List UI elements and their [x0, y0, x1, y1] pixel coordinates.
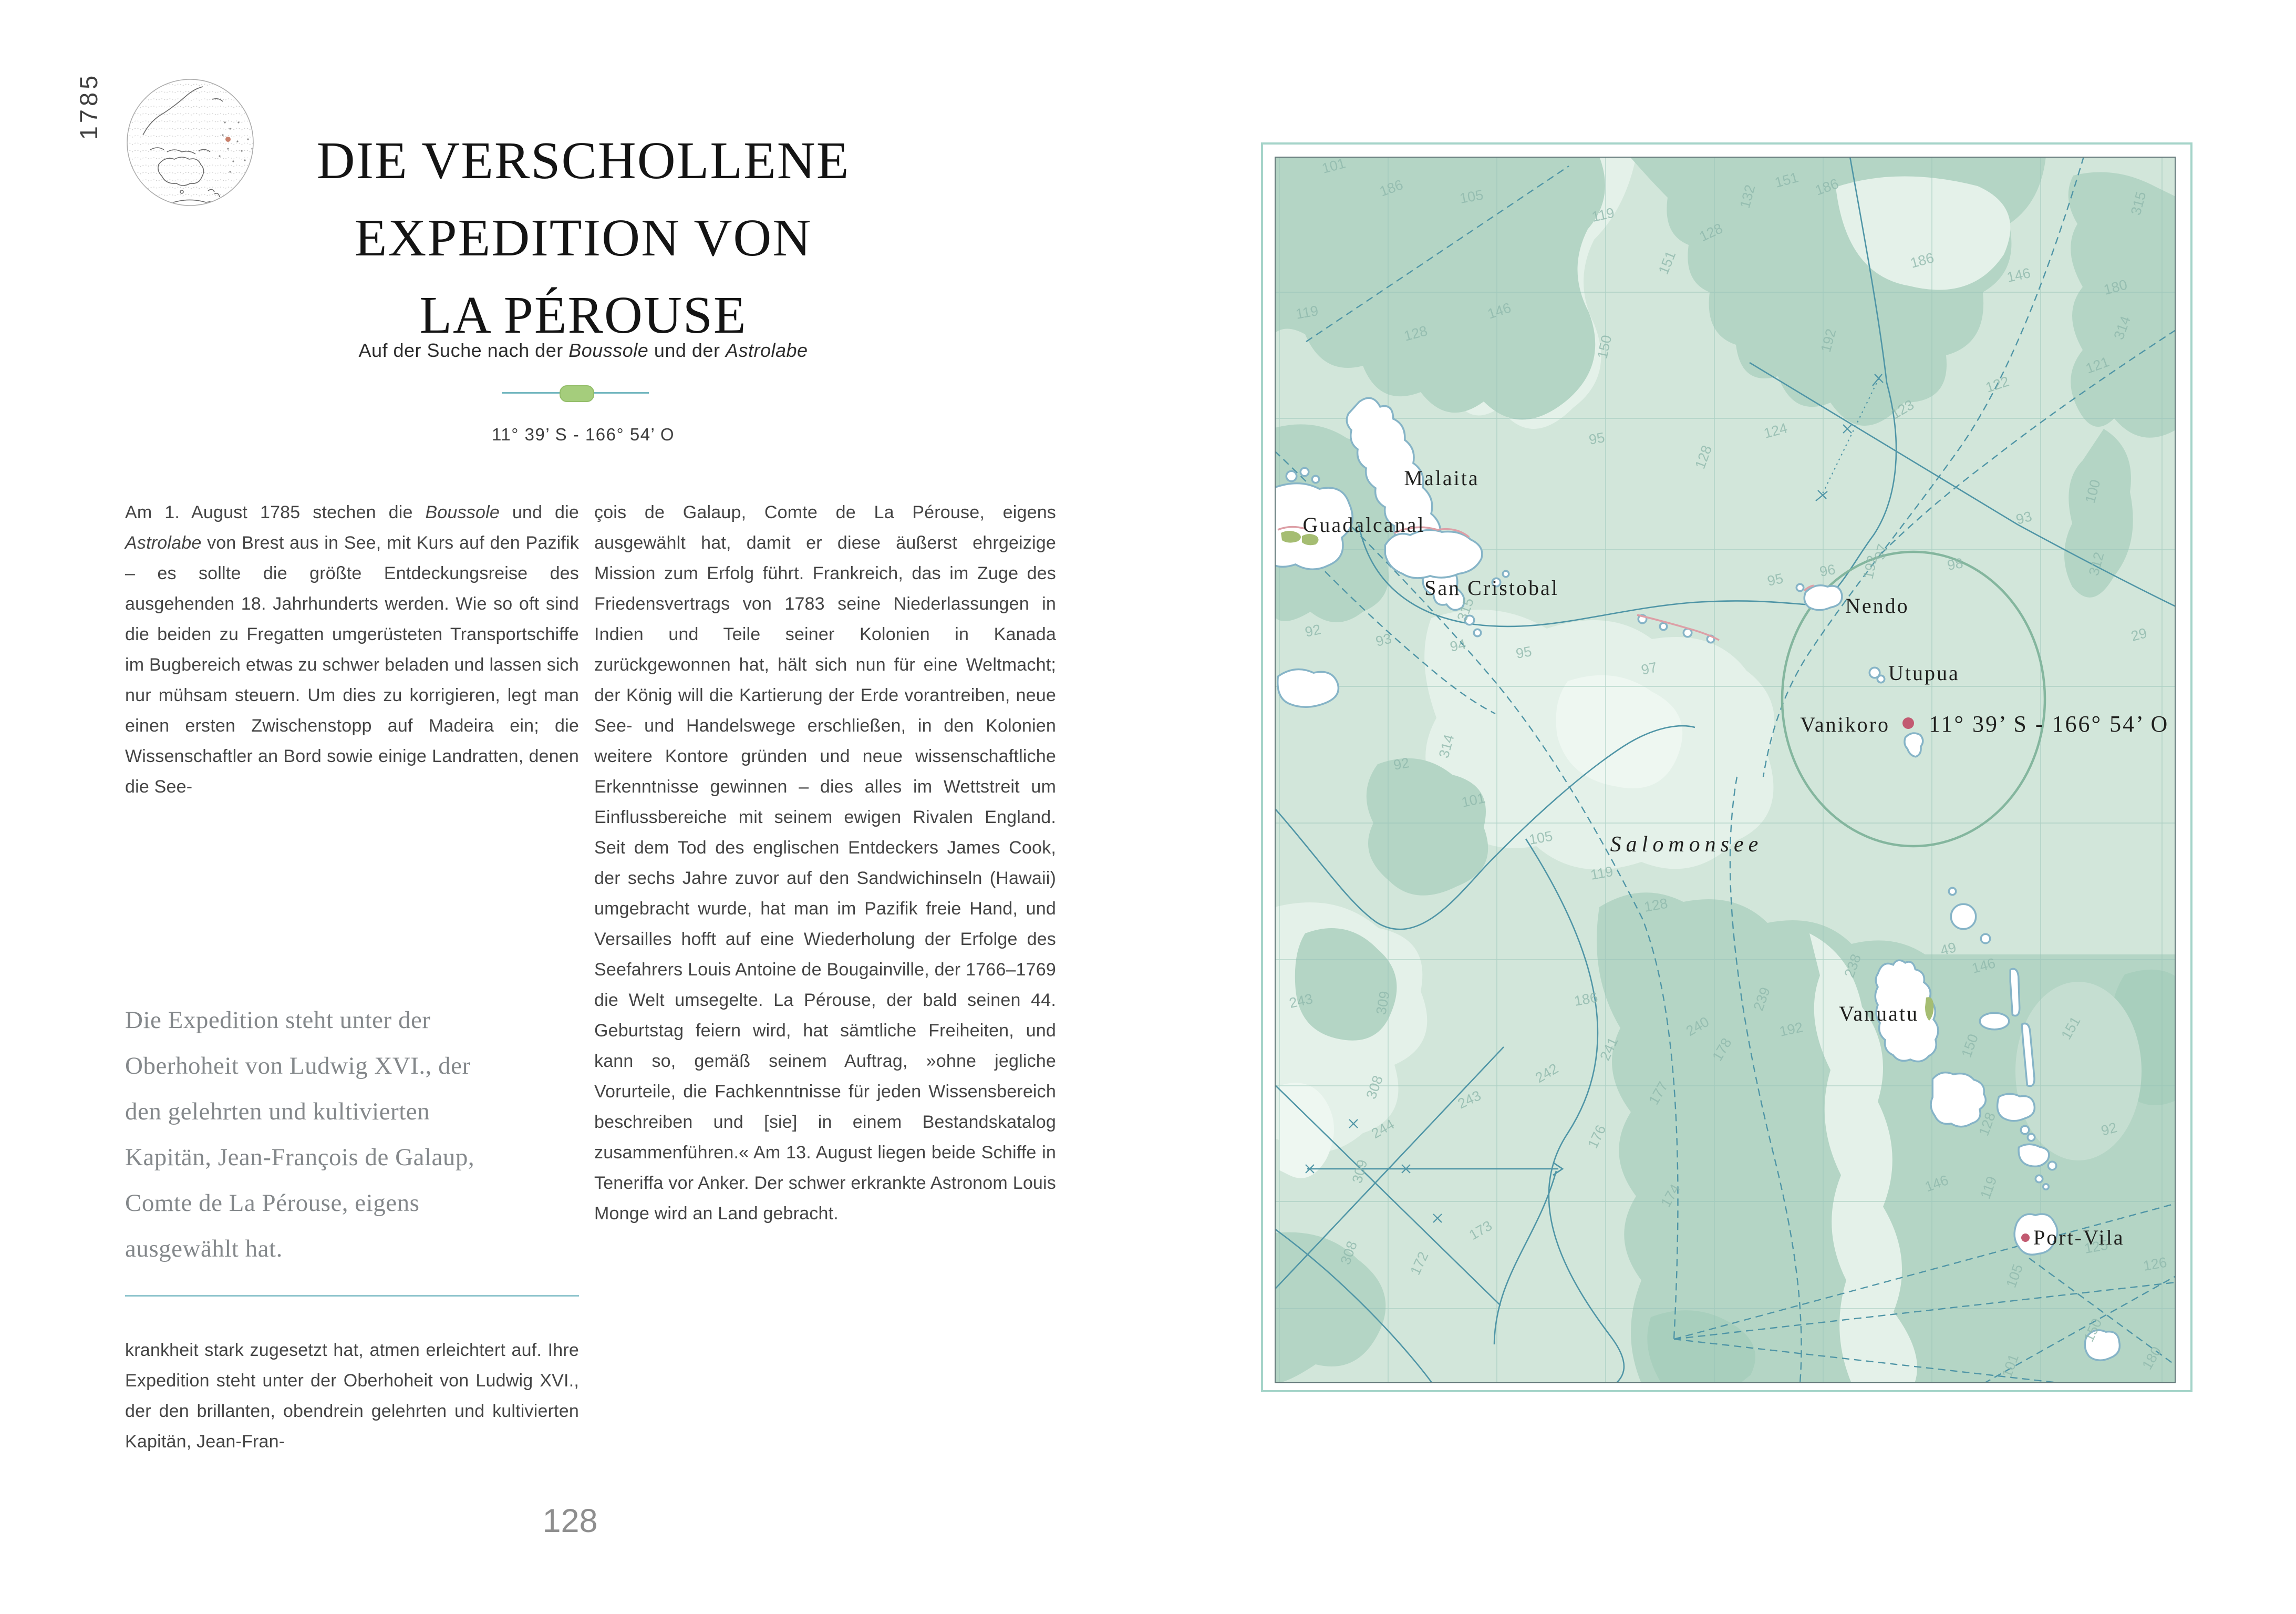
subtitle: Auf der Suche nach der Boussole und der … [200, 340, 967, 362]
map-label: Malaita [1404, 466, 1479, 490]
coordinates-heading: 11° 39’ S - 166° 54’ O [200, 425, 967, 445]
island-maewo [2011, 970, 2019, 1015]
year-label: 1785 [57, 64, 120, 148]
book-page: { "page": { "year_label": "1785", "page_… [0, 0, 2296, 1614]
island-nendo [1805, 587, 1841, 609]
vanikoro-marker [1902, 717, 1914, 729]
svg-text:97: 97 [1640, 659, 1659, 678]
map-label: Nendo [1845, 594, 1909, 618]
island-aoba [1981, 1014, 2008, 1029]
svg-text:95: 95 [1515, 643, 1533, 662]
svg-text:96: 96 [1818, 561, 1837, 580]
svg-text:92: 92 [1392, 755, 1411, 773]
sea-chart: 1011861051191281191281461501511321511861… [1275, 157, 2176, 1383]
divider-pill-icon [560, 385, 594, 402]
page-title: DIE VERSCHOLLENE EXPEDITION VON LA PÉROU… [200, 122, 967, 354]
svg-text:98: 98 [1946, 555, 1964, 573]
island-ambrym [1998, 1095, 2033, 1120]
left-column-paragraph-2: krankheit stark zugesetzt hat, atmen erl… [125, 1335, 579, 1457]
island-san-cristobal [1386, 531, 1481, 577]
island-utupua [1870, 669, 1879, 677]
right-column-paragraph: çois de Galaup, Comte de La Pérouse, eig… [594, 497, 1056, 1229]
page-number: 128 [515, 1502, 625, 1540]
island-malakula [1932, 1073, 1985, 1126]
title-line-2: EXPEDITION VON [200, 199, 967, 276]
island-epi [2020, 1145, 2048, 1166]
map-frame: 1011861051191281191281461501511321511861… [1261, 142, 2192, 1392]
map-label: Vanikoro [1800, 713, 1890, 736]
port-vila-marker [2021, 1233, 2030, 1242]
map-label: Utupua [1888, 661, 1960, 685]
left-column-paragraph: Am 1. August 1785 stechen die Boussole u… [125, 497, 579, 802]
map-label: Port-Vila [2033, 1226, 2124, 1249]
title-line-1: DIE VERSCHOLLENE [200, 122, 967, 199]
pull-quote-rule [125, 1295, 579, 1297]
map-label: San Cristobal [1424, 576, 1559, 600]
map-label: Guadalcanal [1303, 513, 1425, 537]
pull-quote: Die Expedition steht unter derOberhoheit… [125, 998, 587, 1272]
island-banks [1952, 905, 1975, 928]
svg-text:92: 92 [1304, 621, 1322, 640]
svg-text:95: 95 [1766, 570, 1785, 589]
svg-text:94: 94 [1449, 636, 1467, 655]
map-label: Vanuatu [1839, 1002, 1919, 1025]
island-rennell [1278, 670, 1337, 706]
map-label: 11° 39’ S - 166° 54’ O [1929, 711, 2169, 737]
section-divider [502, 390, 649, 395]
svg-text:95: 95 [1588, 429, 1606, 448]
map-label: Salomonsee [1610, 832, 1763, 857]
